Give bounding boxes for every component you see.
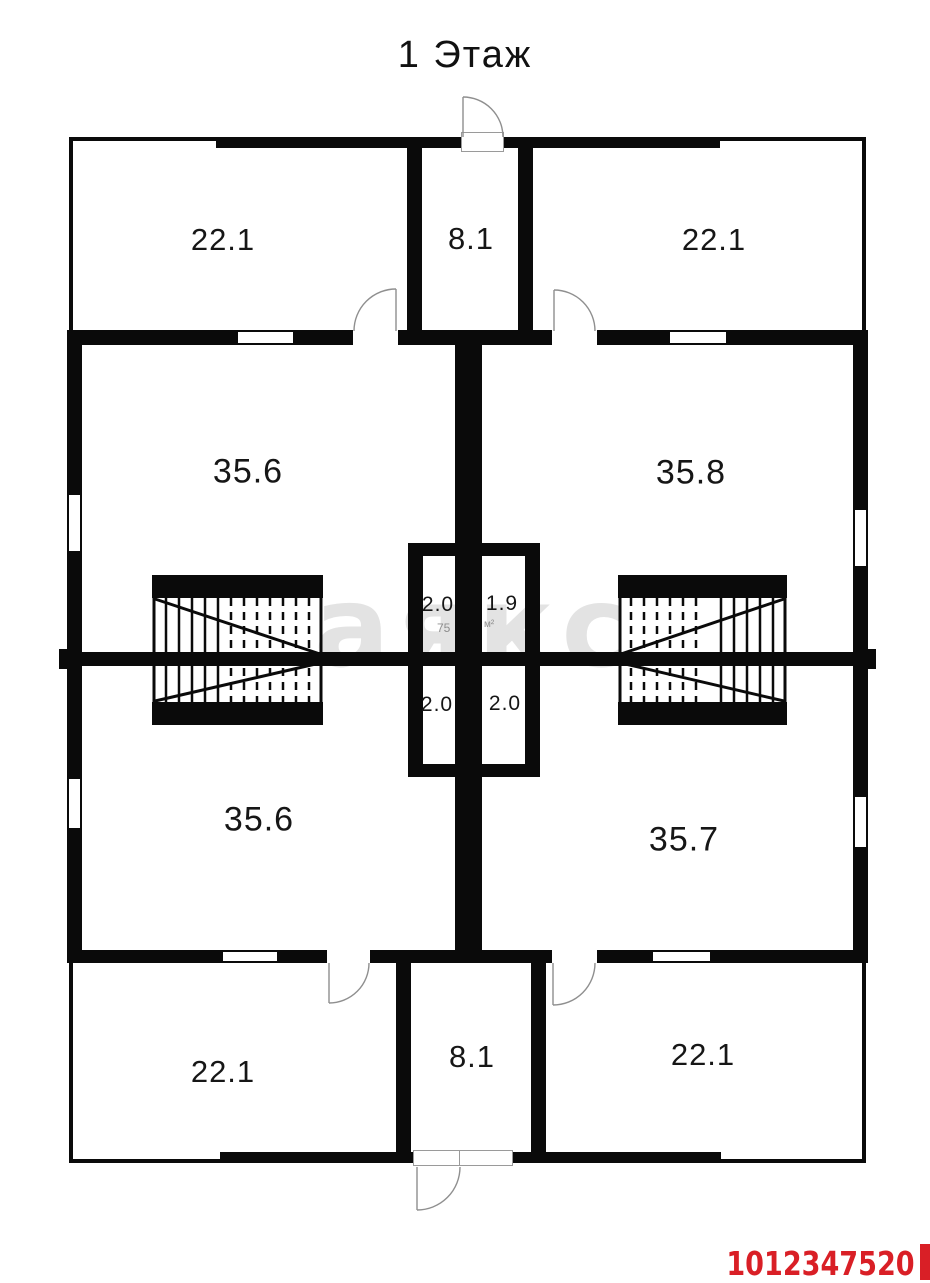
wall (407, 148, 422, 332)
wall (868, 649, 876, 669)
window (67, 495, 82, 551)
window (853, 510, 868, 566)
wall (503, 137, 720, 148)
wall (726, 330, 868, 345)
window (67, 779, 82, 828)
wall (862, 963, 866, 1163)
wall (720, 137, 866, 141)
wall (531, 963, 546, 1155)
wall (220, 1152, 413, 1163)
room-label-closet-lower-left: 2.0 (421, 693, 453, 717)
wall (293, 330, 353, 345)
wall (69, 137, 73, 333)
room-label-mid-lower-left: 35.6 (224, 801, 294, 840)
room-label-closet-upper-left: 2.0 (422, 593, 454, 617)
wall (408, 543, 540, 556)
area-note-left: 75 (437, 621, 450, 635)
wall (69, 963, 73, 1163)
entrance-door-sidelight (459, 1150, 513, 1166)
wall (518, 148, 533, 332)
window (853, 797, 868, 847)
wall (455, 345, 482, 950)
wall (525, 543, 540, 777)
staircase-left (152, 575, 323, 725)
wall (69, 137, 216, 141)
entrance-door-frame (413, 1150, 460, 1166)
area-note-right: м² (484, 619, 494, 630)
wall (396, 963, 411, 1155)
room-label-mid-upper-right: 35.8 (656, 454, 726, 493)
wall (513, 1152, 721, 1163)
wall (721, 1159, 866, 1163)
wall (398, 330, 552, 345)
floor-plan: аякс 1 Этаж (0, 0, 930, 1280)
door-swing-icon (329, 963, 369, 1003)
wall (597, 330, 670, 345)
window (653, 950, 710, 963)
window (238, 330, 293, 345)
room-label-closet-lower-right: 2.0 (489, 692, 521, 716)
room-label-top-right: 22.1 (682, 222, 746, 258)
room-label-bottom-center: 8.1 (449, 1039, 495, 1075)
wall (370, 950, 552, 963)
wall (408, 543, 423, 777)
wall (67, 652, 868, 666)
room-label-bottom-right: 22.1 (671, 1037, 735, 1073)
window (223, 950, 277, 963)
wall (853, 566, 868, 797)
room-label-bottom-left: 22.1 (191, 1054, 255, 1090)
door-swing-icon (417, 1167, 460, 1210)
red-strip (920, 1244, 930, 1280)
door-swing-icon (354, 289, 396, 331)
room-label-closet-upper-right: 1.9 (486, 592, 518, 616)
listing-id: 1012347520 (727, 1244, 915, 1283)
room-label-mid-upper-left: 35.6 (213, 453, 283, 492)
wall (710, 950, 868, 963)
room-label-mid-lower-right: 35.7 (649, 821, 719, 860)
entrance-door-frame (461, 132, 504, 152)
room-label-top-center: 8.1 (448, 221, 494, 257)
wall (59, 649, 67, 669)
wall (277, 950, 327, 963)
door-swing-icon (553, 963, 595, 1005)
wall (216, 137, 462, 148)
wall (67, 332, 82, 495)
window (670, 330, 726, 345)
door-swing-icon (554, 290, 595, 331)
door-swing-icon (463, 97, 503, 137)
staircase-right (618, 575, 787, 725)
wall (67, 330, 238, 345)
wall (67, 828, 82, 963)
floor-title: 1 Этаж (398, 34, 533, 77)
wall (597, 950, 653, 963)
room-label-top-left: 22.1 (191, 222, 255, 258)
wall (69, 1159, 220, 1163)
wall (408, 764, 540, 777)
wall (853, 332, 868, 510)
wall (853, 847, 868, 963)
wall (67, 950, 223, 963)
wall (862, 137, 866, 333)
